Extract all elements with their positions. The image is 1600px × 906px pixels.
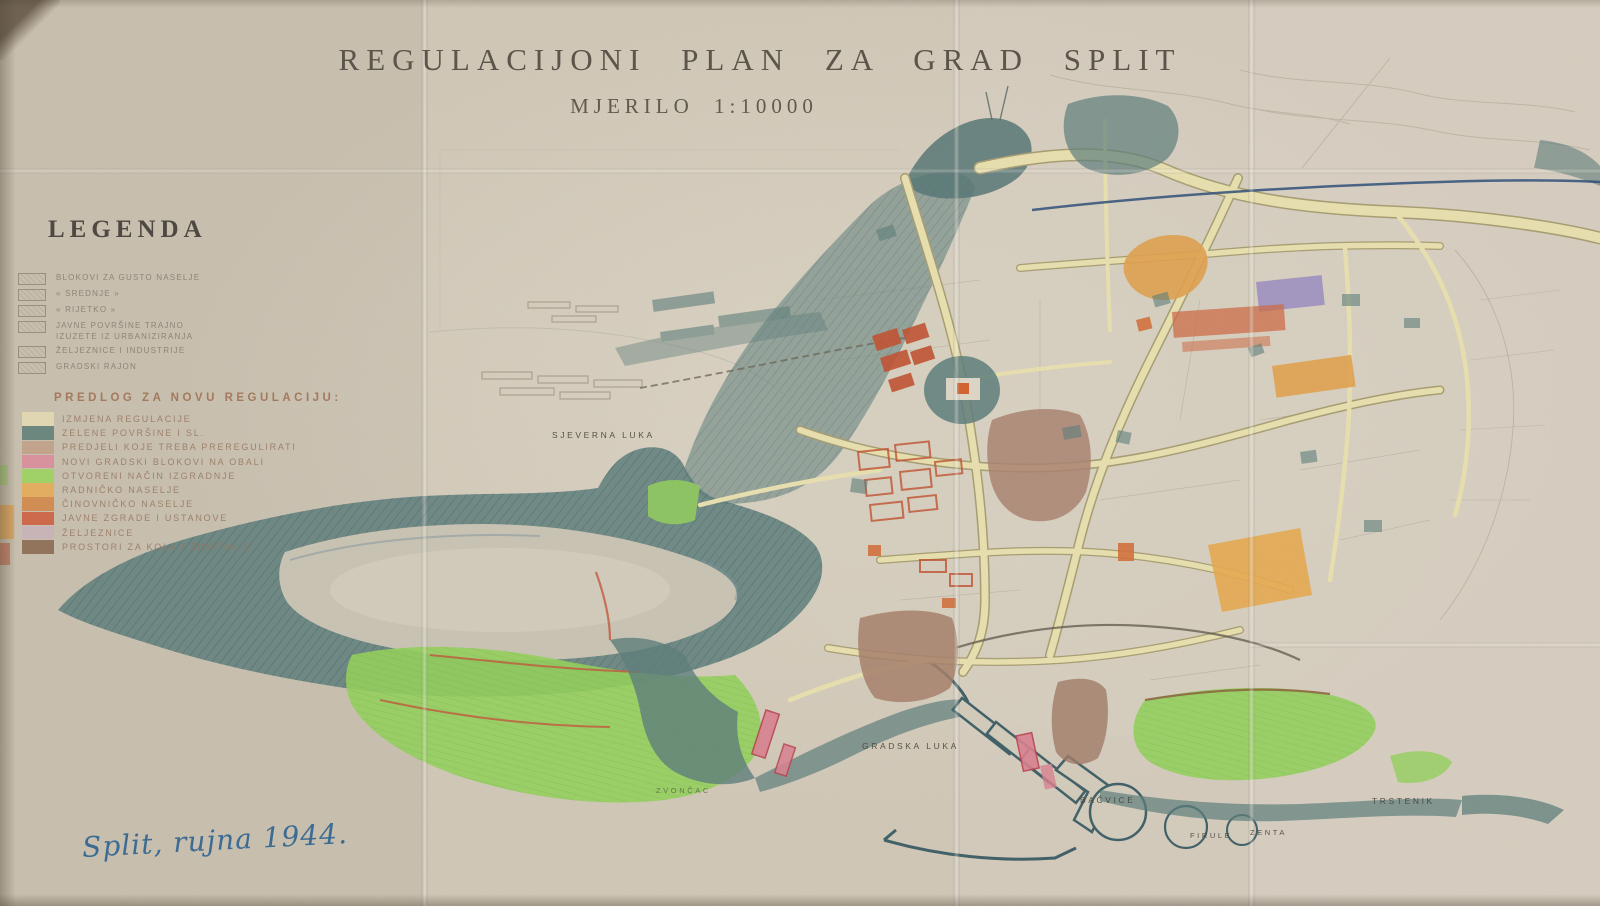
legend-color-swatch <box>22 469 54 483</box>
legend-proposal-label: ČINOVNIČKO NASELJE <box>62 499 194 509</box>
legend-proposal-label: PROSTORI ZA KOLA I ŽIVOTINJE <box>62 542 252 552</box>
district-brown-west <box>858 611 958 703</box>
map-label-zenta: ZENTA <box>1250 828 1287 837</box>
legend-existing-swatch <box>18 273 46 285</box>
legend-proposal-item: PREDJELI KOJE TREBA PREREGULIRATI <box>18 440 348 454</box>
legend-existing-label: « RIJETKO » <box>56 304 116 315</box>
legend-heading: LEGENDA <box>48 216 348 244</box>
legend-existing-item: JAVNE POVRŠINE TRAJNO IZUZETE IZ URBANIZ… <box>18 320 348 342</box>
map-label-zvoncac: ZVONČAC <box>656 786 711 795</box>
legend-panel: LEGENDA BLOKOVI ZA GUSTO NASELJE « SREDN… <box>18 216 348 554</box>
legend-color-swatch <box>22 455 54 469</box>
spinut-green <box>648 480 700 524</box>
legend-proposal-item: NOVI GRADSKI BLOKOVI NA OBALI <box>18 455 348 469</box>
legend-proposal-label: PREDJELI KOJE TREBA PREREGULIRATI <box>62 442 297 452</box>
legend-proposal-list: IZMJENA REGULACIJE ZELENE POVRŠINE I SL.… <box>18 412 348 554</box>
legend-existing-swatch <box>18 362 46 374</box>
district-brown-bacvice <box>1052 679 1108 765</box>
legend-proposal-item: ČINOVNIČKO NASELJE <box>18 497 348 511</box>
legend-existing-label: « SREDNJE » <box>56 288 120 299</box>
map-label-sjeverna-luka: SJEVERNA LUKA <box>552 430 655 440</box>
fold-crease-horizontal-1 <box>0 168 1600 174</box>
legend-existing-swatch <box>18 346 46 358</box>
legend-existing-list: BLOKOVI ZA GUSTO NASELJE « SREDNJE » « R… <box>18 272 348 374</box>
legend-proposal-label: NOVI GRADSKI BLOKOVI NA OBALI <box>62 457 265 467</box>
legend-existing-item: « RIJETKO » <box>18 304 348 317</box>
left-edge-shadow <box>0 0 16 906</box>
legend-proposal-label: JAVNE ZGRADE I USTANOVE <box>62 513 228 523</box>
legend-proposal-label: ZELENE POVRŠINE I SL. <box>62 428 205 438</box>
legend-existing-item: BLOKOVI ZA GUSTO NASELJE <box>18 272 348 285</box>
legend-existing-item: GRADSKI RAJON <box>18 361 348 374</box>
legend-existing-swatch <box>18 289 46 301</box>
legend-existing-label: ŽELJEZNICE I INDUSTRIJE <box>56 345 185 356</box>
map-label-gradska-luka: GRADSKA LUKA <box>862 741 959 751</box>
legend-proposal-label: OTVORENI NAČIN IZGRADNJE <box>62 471 236 481</box>
map-label-trstenik: TRSTENIK <box>1372 796 1435 806</box>
legend-existing-label: GRADSKI RAJON <box>56 361 137 372</box>
map-title: REGULACIJONI PLAN ZA GRAD SPLIT <box>339 42 1182 78</box>
legend-proposal-item: JAVNE ZGRADE I USTANOVE <box>18 511 348 525</box>
legend-color-swatch <box>22 512 54 526</box>
legend-color-swatch <box>22 526 54 540</box>
legend-color-swatch <box>22 497 54 511</box>
legend-color-swatch <box>22 540 54 554</box>
map-scale: MJERILO 1:10000 <box>570 94 818 119</box>
legend-color-swatch <box>22 412 54 426</box>
legend-proposal-label: IZMJENA REGULACIJE <box>62 414 191 424</box>
legend-proposal-heading: PREDLOG ZA NOVU REGULACIJU: <box>54 392 348 404</box>
legend-proposal-item: ZELENE POVRŠINE I SL. <box>18 426 348 440</box>
breakwater <box>884 830 1076 859</box>
legend-proposal-item: ŽELJEZNICE <box>18 526 348 540</box>
top-edge-shadow <box>0 0 1600 8</box>
legend-color-swatch <box>22 483 54 497</box>
fold-crease-vertical-3 <box>1248 0 1255 906</box>
fold-crease-horizontal-2 <box>1250 642 1600 648</box>
legend-existing-label: BLOKOVI ZA GUSTO NASELJE <box>56 272 200 283</box>
legend-existing-swatch <box>18 305 46 317</box>
legend-existing-label: JAVNE POVRŠINE TRAJNO IZUZETE IZ URBANIZ… <box>56 320 193 342</box>
legend-existing-swatch <box>18 321 46 333</box>
legend-proposal-item: OTVORENI NAČIN IZGRADNJE <box>18 469 348 483</box>
legend-existing-item: « SREDNJE » <box>18 288 348 301</box>
fold-crease-vertical-1 <box>421 0 428 906</box>
scanned-map-sheet: REGULACIJONI PLAN ZA GRAD SPLIT MJERILO … <box>0 0 1600 906</box>
bottom-edge-shadow <box>0 894 1600 906</box>
map-label-bacvice: BAČVICE <box>1080 795 1136 805</box>
legend-proposal-item: PROSTORI ZA KOLA I ŽIVOTINJE <box>18 540 348 554</box>
map-label-firule: FIRULE <box>1190 831 1232 840</box>
legend-proposal-label: ŽELJEZNICE <box>62 528 134 538</box>
legend-proposal-item: RADNIČKO NASELJE <box>18 483 348 497</box>
legend-existing-item: ŽELJEZNICE I INDUSTRIJE <box>18 345 348 358</box>
east-coast <box>1090 688 1564 848</box>
legend-color-swatch <box>22 426 54 440</box>
legend-color-swatch <box>22 441 54 455</box>
legend-proposal-item: IZMJENA REGULACIJE <box>18 412 348 426</box>
fold-crease-vertical-2 <box>953 0 960 906</box>
legend-proposal-label: RADNIČKO NASELJE <box>62 485 181 495</box>
